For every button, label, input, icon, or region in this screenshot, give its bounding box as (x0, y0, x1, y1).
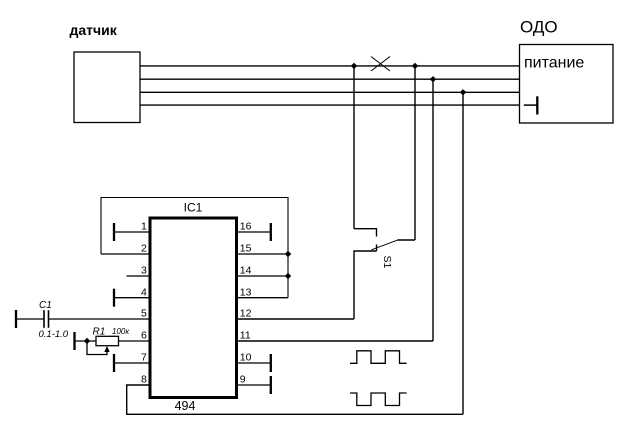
svg-text:ОДО: ОДО (520, 18, 558, 37)
svg-text:4: 4 (141, 286, 147, 298)
svg-text:датчик: датчик (70, 22, 118, 38)
svg-text:7: 7 (141, 352, 147, 364)
svg-text:12: 12 (240, 308, 252, 320)
svg-text:3: 3 (141, 265, 147, 277)
svg-text:питание: питание (524, 55, 584, 72)
svg-text:0.1-1.0: 0.1-1.0 (39, 329, 69, 340)
svg-text:10: 10 (240, 352, 252, 364)
svg-text:100к: 100к (112, 327, 130, 336)
svg-text:IC1: IC1 (184, 201, 203, 215)
svg-text:14: 14 (240, 265, 252, 277)
svg-text:S1: S1 (381, 256, 393, 269)
svg-text:11: 11 (240, 330, 251, 342)
svg-text:1: 1 (141, 221, 147, 233)
svg-text:5: 5 (141, 308, 147, 320)
svg-text:2: 2 (141, 243, 147, 255)
svg-text:C1: C1 (39, 300, 52, 311)
svg-text:9: 9 (240, 374, 246, 386)
svg-text:494: 494 (175, 399, 196, 413)
svg-text:15: 15 (240, 243, 252, 255)
svg-text:13: 13 (240, 286, 252, 298)
svg-text:6: 6 (141, 330, 147, 342)
svg-text:8: 8 (141, 374, 147, 386)
svg-text:R1: R1 (93, 327, 106, 338)
svg-text:16: 16 (240, 221, 252, 233)
